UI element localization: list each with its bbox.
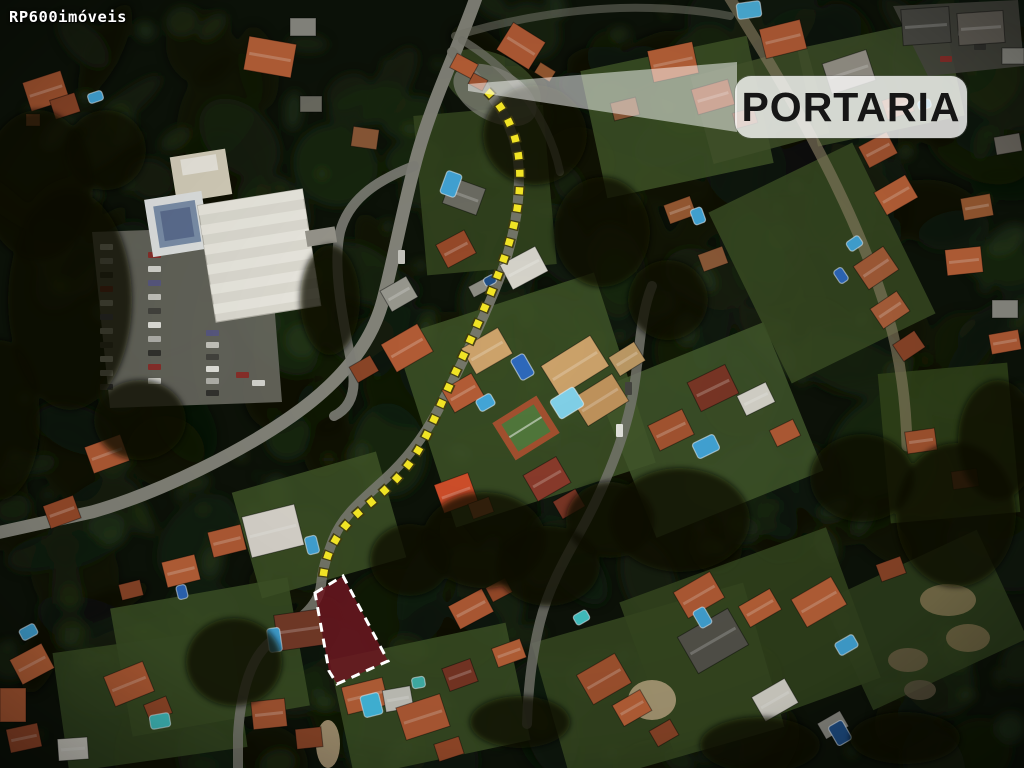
portaria-callout: PORTARIA <box>735 76 967 138</box>
watermark: RP600imóveis <box>9 8 127 26</box>
satellite-screenshot: RP600imóveis PORTARIA <box>0 0 1024 768</box>
portaria-label: PORTARIA <box>741 84 960 131</box>
